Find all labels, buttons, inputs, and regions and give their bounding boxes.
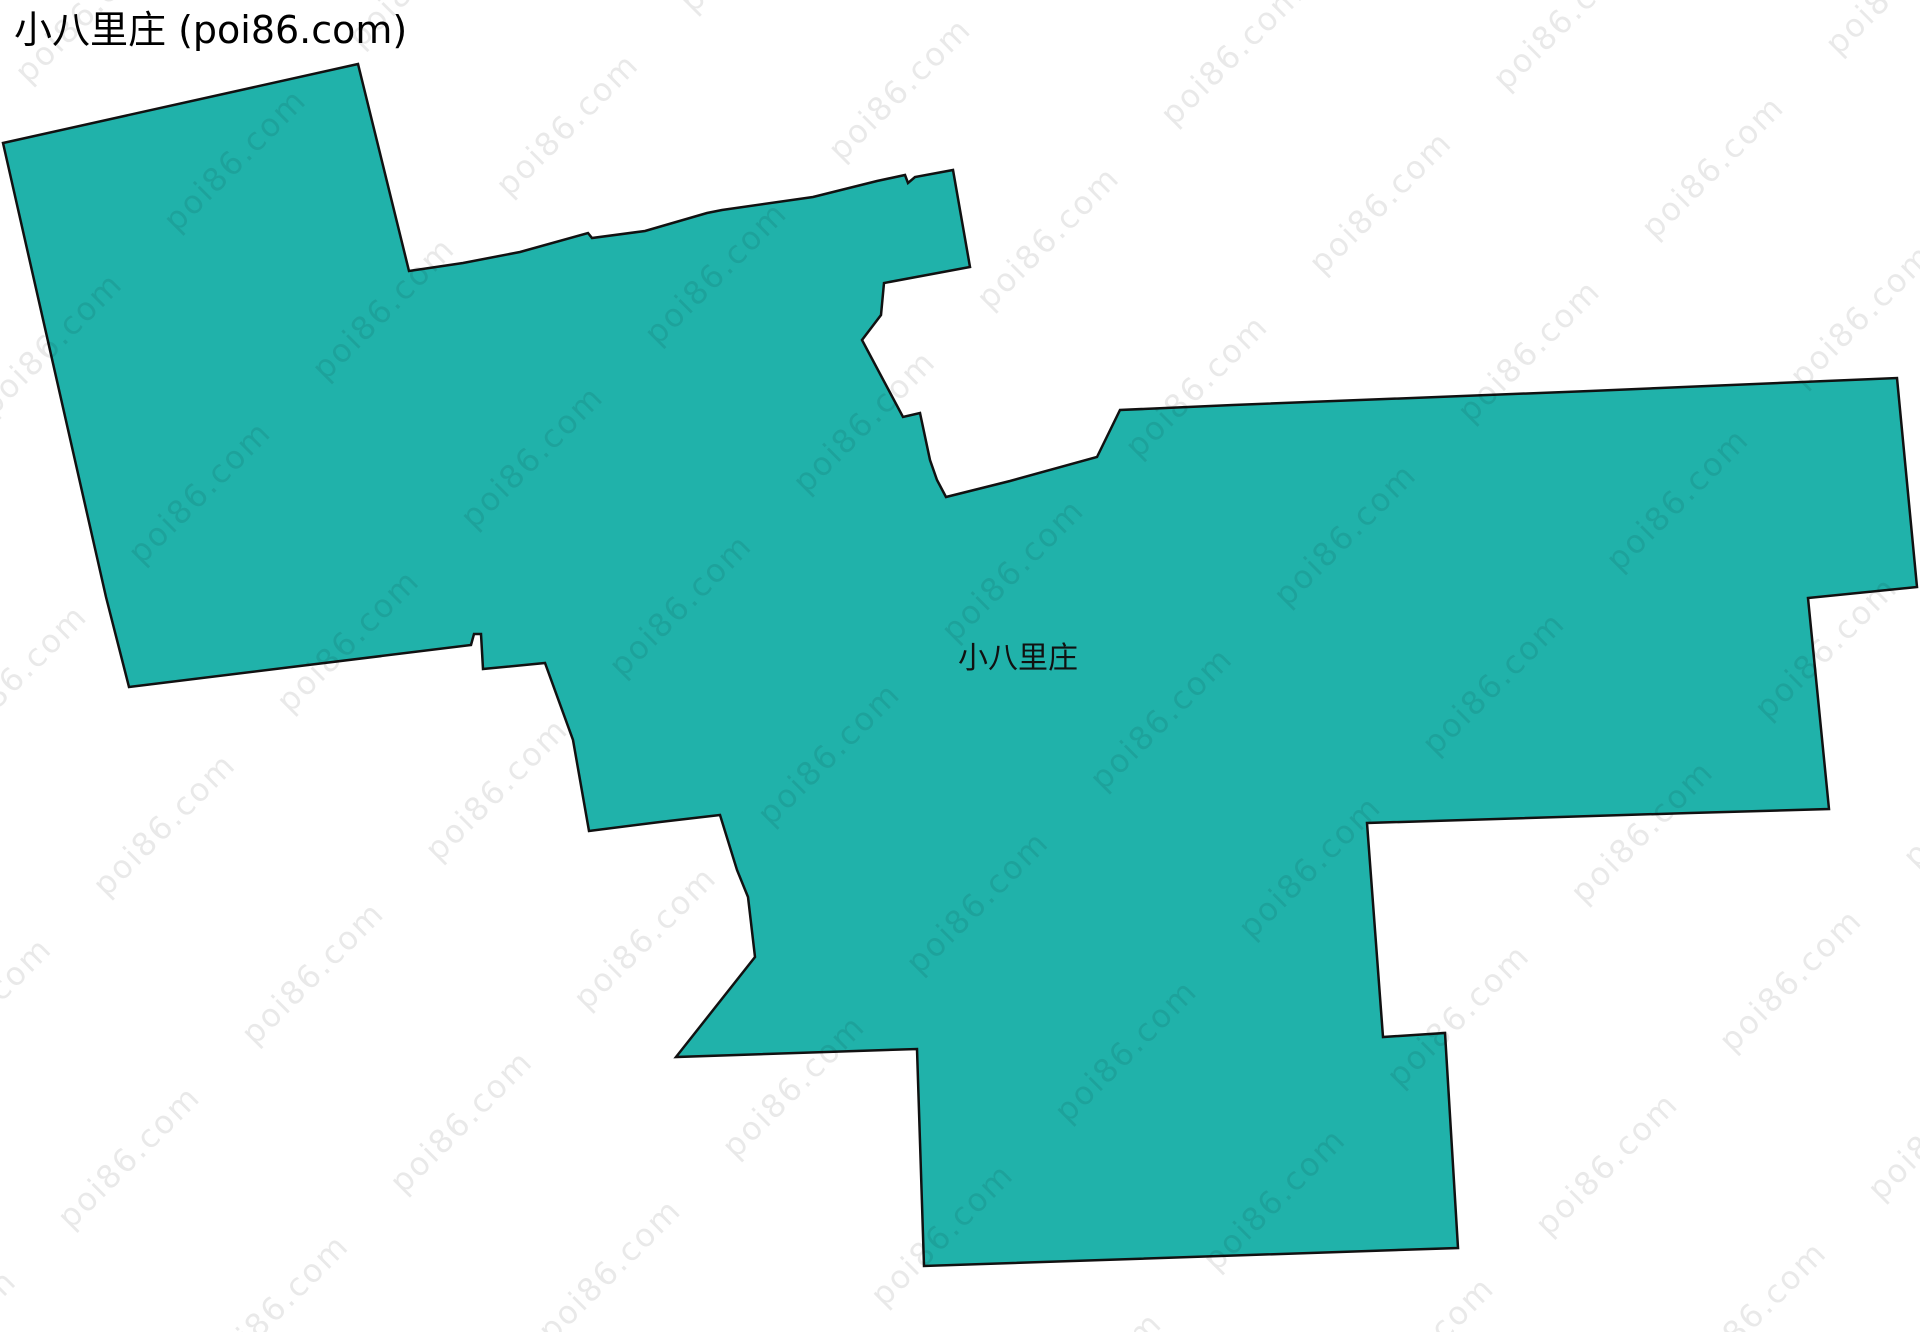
watermark-text: poi86.com [566,858,724,1016]
boundary-map-svg: poi86.compoi86.compoi86.compoi86.compoi8… [0,0,1920,1332]
watermark-text: poi86.com [1782,236,1920,394]
watermark-text: poi86.com [1895,717,1920,875]
watermark-text: poi86.com [820,10,978,168]
watermark-text: poi86.com [1633,88,1791,246]
watermark-text: poi86.com [1676,1233,1834,1332]
watermark-text: poi86.com [1485,0,1643,98]
watermark-text: poi86.com [0,597,95,755]
watermark-text: poi86.com [1343,1269,1501,1332]
region-label: 小八里庄 [958,641,1078,676]
map-canvas: poi86.compoi86.compoi86.compoi86.compoi8… [0,0,1920,1332]
watermark-text: poi86.com [1527,1085,1685,1243]
watermark-text: poi86.com [1711,901,1869,1059]
watermark-text: poi86.com [1301,123,1459,281]
watermark-text: poi86.com [1817,0,1920,62]
watermark-text: poi86.com [198,1226,356,1332]
watermark-text: poi86.com [969,158,1127,316]
watermark-text: poi86.com [530,1191,688,1332]
page-title: 小八里庄 (poi86.com) [14,10,407,52]
watermark-text: poi86.com [1153,0,1311,133]
watermark-text: poi86.com [233,894,391,1052]
watermark-text: poi86.com [488,45,646,203]
watermark-text: poi86.com [382,1042,540,1200]
watermark-text: poi86.com [672,0,830,20]
watermark-text: poi86.com [0,1261,24,1332]
watermark-text: poi86.com [0,929,59,1087]
watermark-text: poi86.com [1011,1304,1169,1332]
watermark-text: poi86.com [1860,1049,1920,1207]
watermark-text: poi86.com [417,710,575,868]
watermark-text: poi86.com [85,745,243,903]
watermark-text: poi86.com [1379,936,1537,1094]
watermark-text: poi86.com [49,1078,207,1236]
